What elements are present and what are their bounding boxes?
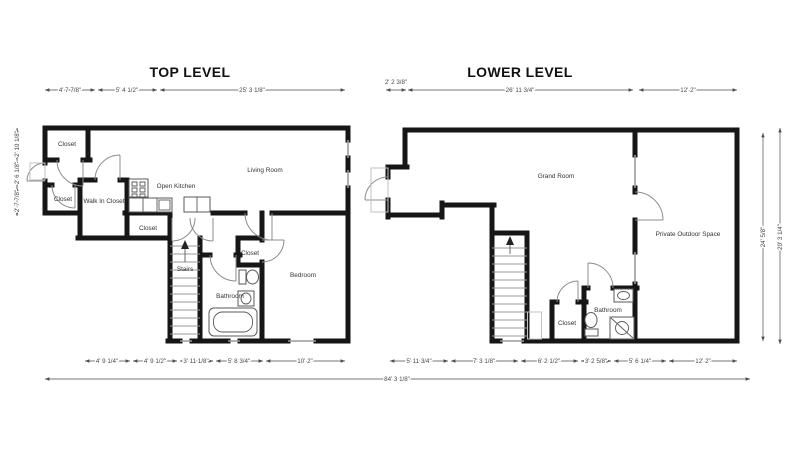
lower-level-stairs: [492, 236, 542, 339]
dimension-label: 7' 3 1/8": [473, 358, 495, 365]
dimension-label: 5' 11 3/4": [406, 358, 431, 365]
dimension-label: 12' 2": [695, 358, 710, 365]
room-label-closet-left: Closet: [54, 196, 72, 203]
dimension-label: 5' 6 1/4": [629, 358, 651, 365]
room-label-closet: Closet: [558, 320, 576, 327]
room-label-bathroom: Bathroom: [216, 293, 244, 300]
room-label-walk-in-closet: Walk In Closet: [84, 198, 125, 205]
stair-up-arrow-icon: [506, 236, 514, 245]
room-label-grand-room: Grand Room: [538, 173, 575, 180]
room-label-living-room: Living Room: [247, 167, 283, 174]
dimension-label: 4' 7 7/8": [59, 87, 81, 94]
room-label-open-kitchen: Open Kitchen: [157, 183, 196, 190]
toilet-tank-icon: [239, 270, 246, 284]
dimension-label: 3' 2 5/8": [585, 358, 607, 365]
room-label-private-outdoor-space: Private Outdoor Space: [656, 231, 721, 238]
lower-level-title: LOWER LEVEL: [467, 64, 573, 80]
lower-bathroom-fixtures: [585, 289, 634, 339]
top-level-plan: TOP LEVEL Closet: [27, 64, 348, 341]
room-label-bedroom: Bedroom: [290, 272, 316, 279]
dimension-label: 25' 3 1/8": [239, 87, 265, 94]
room-label-closet-hall: Closet: [139, 225, 157, 232]
toilet-bowl-icon: [585, 313, 597, 328]
floorplan-page: TOP LEVEL Closet: [0, 0, 800, 450]
dimension-label: 10' 2": [297, 358, 312, 365]
room-label-stairs: Stairs: [177, 266, 193, 273]
dimension-label: 5' 4 1/2": [116, 87, 138, 94]
dimension-label: 2' 6 1/8": [14, 162, 21, 184]
top-bathroom-fixtures: [209, 270, 259, 336]
dimension-label: 4' 9 1/2": [144, 358, 166, 365]
stair-landing: [528, 312, 542, 339]
dimension-label: 5' 8 3/4": [228, 358, 250, 365]
lower-level-plan: LOWER LEVEL Grand Room Closet Bathroom P…: [365, 64, 737, 341]
lower-level-doors: [365, 177, 663, 302]
dimension-label: 24' 5/8": [760, 227, 767, 248]
toilet-tank-icon: [585, 329, 598, 336]
lower-level-room-labels: Grand Room Closet Bathroom Private Outdo…: [538, 173, 721, 327]
dimension-label: 4' 9 1/4": [96, 358, 118, 365]
dimension-label-overall: 84' 3 1/8": [384, 376, 410, 383]
dimension-label: 6' 2 1/2": [538, 358, 560, 365]
stair-treads: [492, 248, 527, 336]
top-level-stairs: [170, 240, 200, 334]
toilet-bowl-icon: [247, 270, 259, 284]
room-label-closet-entry: Closet: [58, 141, 76, 148]
top-level-doors: [27, 155, 284, 281]
sink-icon: [614, 289, 633, 302]
dimension-label: 26' 11 3/4": [506, 87, 535, 94]
stair-up-arrow-icon: [181, 240, 189, 249]
top-level-title: TOP LEVEL: [150, 64, 231, 80]
dimension-label: 2' 2 3/8": [385, 79, 407, 86]
room-label-closet-bedroom: Closet: [241, 250, 259, 257]
top-level-room-labels: Closet Closet Walk In Closet Open Kitche…: [54, 141, 316, 300]
room-label-bathroom: Bathroom: [594, 307, 622, 314]
dimension-label: 12' 2": [680, 87, 695, 94]
floorplan-canvas: TOP LEVEL Closet: [0, 0, 800, 450]
dimension-label: 20' 3 1/4": [777, 224, 784, 250]
entry-stoop: [30, 163, 45, 180]
lower-entry-stoop: [371, 168, 388, 212]
dimension-label: 2' 10 1/8": [14, 131, 21, 157]
dimension-label: 3' 11 1/8": [183, 358, 208, 365]
dimension-label: 2' 7 7/8": [14, 190, 21, 212]
